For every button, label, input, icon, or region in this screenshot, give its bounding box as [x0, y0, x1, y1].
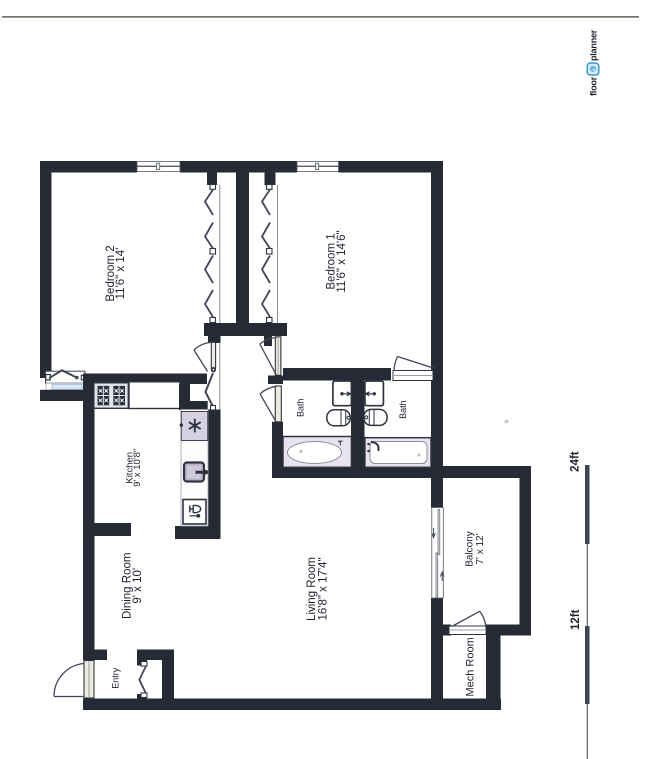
svg-text:Bedroom 211'6" x 14': Bedroom 211'6" x 14': [105, 245, 127, 301]
svg-text:Living Room16'8" x 17'4": Living Room16'8" x 17'4": [306, 557, 329, 621]
svg-text:floor: floor: [589, 76, 599, 96]
svg-text:Bath: Bath: [295, 398, 305, 417]
svg-text:planner: planner: [589, 29, 599, 61]
svg-text:Balcony7' x 12': Balcony7' x 12': [465, 531, 487, 567]
svg-text:12ft: 12ft: [570, 609, 582, 630]
svg-text:Bath: Bath: [398, 400, 408, 419]
svg-text:Kitchen9' x 10'8": Kitchen9' x 10'8": [125, 449, 144, 487]
svg-text:Entry: Entry: [111, 667, 121, 689]
svg-text:Mech Room: Mech Room: [465, 637, 477, 696]
svg-text:Bedroom 111'6" x 14'6": Bedroom 111'6" x 14'6": [326, 230, 349, 292]
svg-text:24ft: 24ft: [569, 451, 581, 472]
